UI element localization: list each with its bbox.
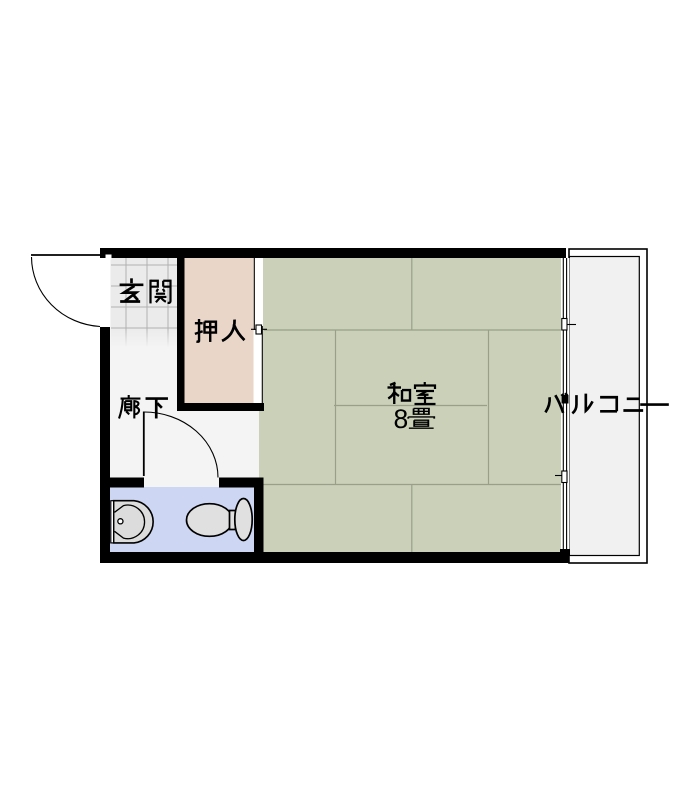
svg-text:8: 8 — [394, 404, 409, 434]
